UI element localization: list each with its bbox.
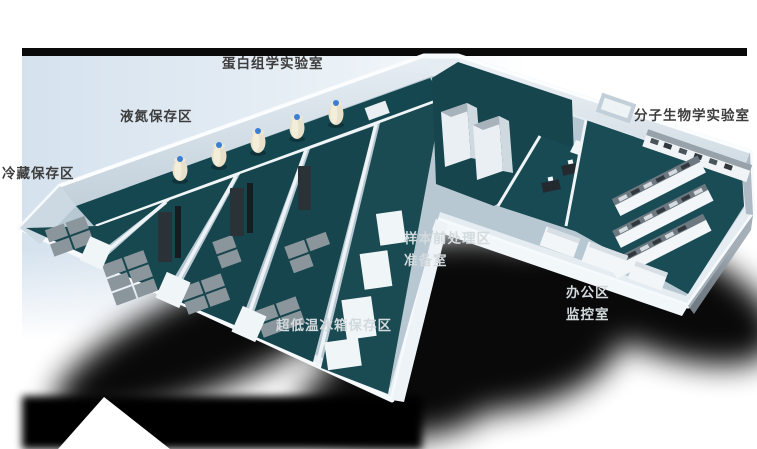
lab-floorplan-image: 蛋白组学实验室 液氮保存区 冷藏保存区 分子生物学实验室 样本前处理区 准备室 … — [0, 0, 757, 449]
floorplan-render — [0, 0, 757, 449]
room-label-preparation-room: 准备室 — [404, 255, 448, 269]
room-label-molecular-biology-lab: 分子生物学实验室 — [634, 110, 750, 124]
room-label-proteomics-lab: 蛋白组学实验室 — [222, 58, 324, 72]
room-label-sample-pretreatment: 样本前处理区 — [404, 233, 491, 247]
room-label-liquid-nitrogen-storage: 液氮保存区 — [120, 111, 193, 125]
room-label-ulf-freezer-storage: 超低温冰箱保存区 — [276, 320, 392, 334]
room-label-cold-storage: 冷藏保存区 — [2, 168, 75, 182]
room-label-office-area: 办公区 — [566, 287, 610, 301]
room-label-monitoring-room: 监控室 — [566, 309, 610, 323]
